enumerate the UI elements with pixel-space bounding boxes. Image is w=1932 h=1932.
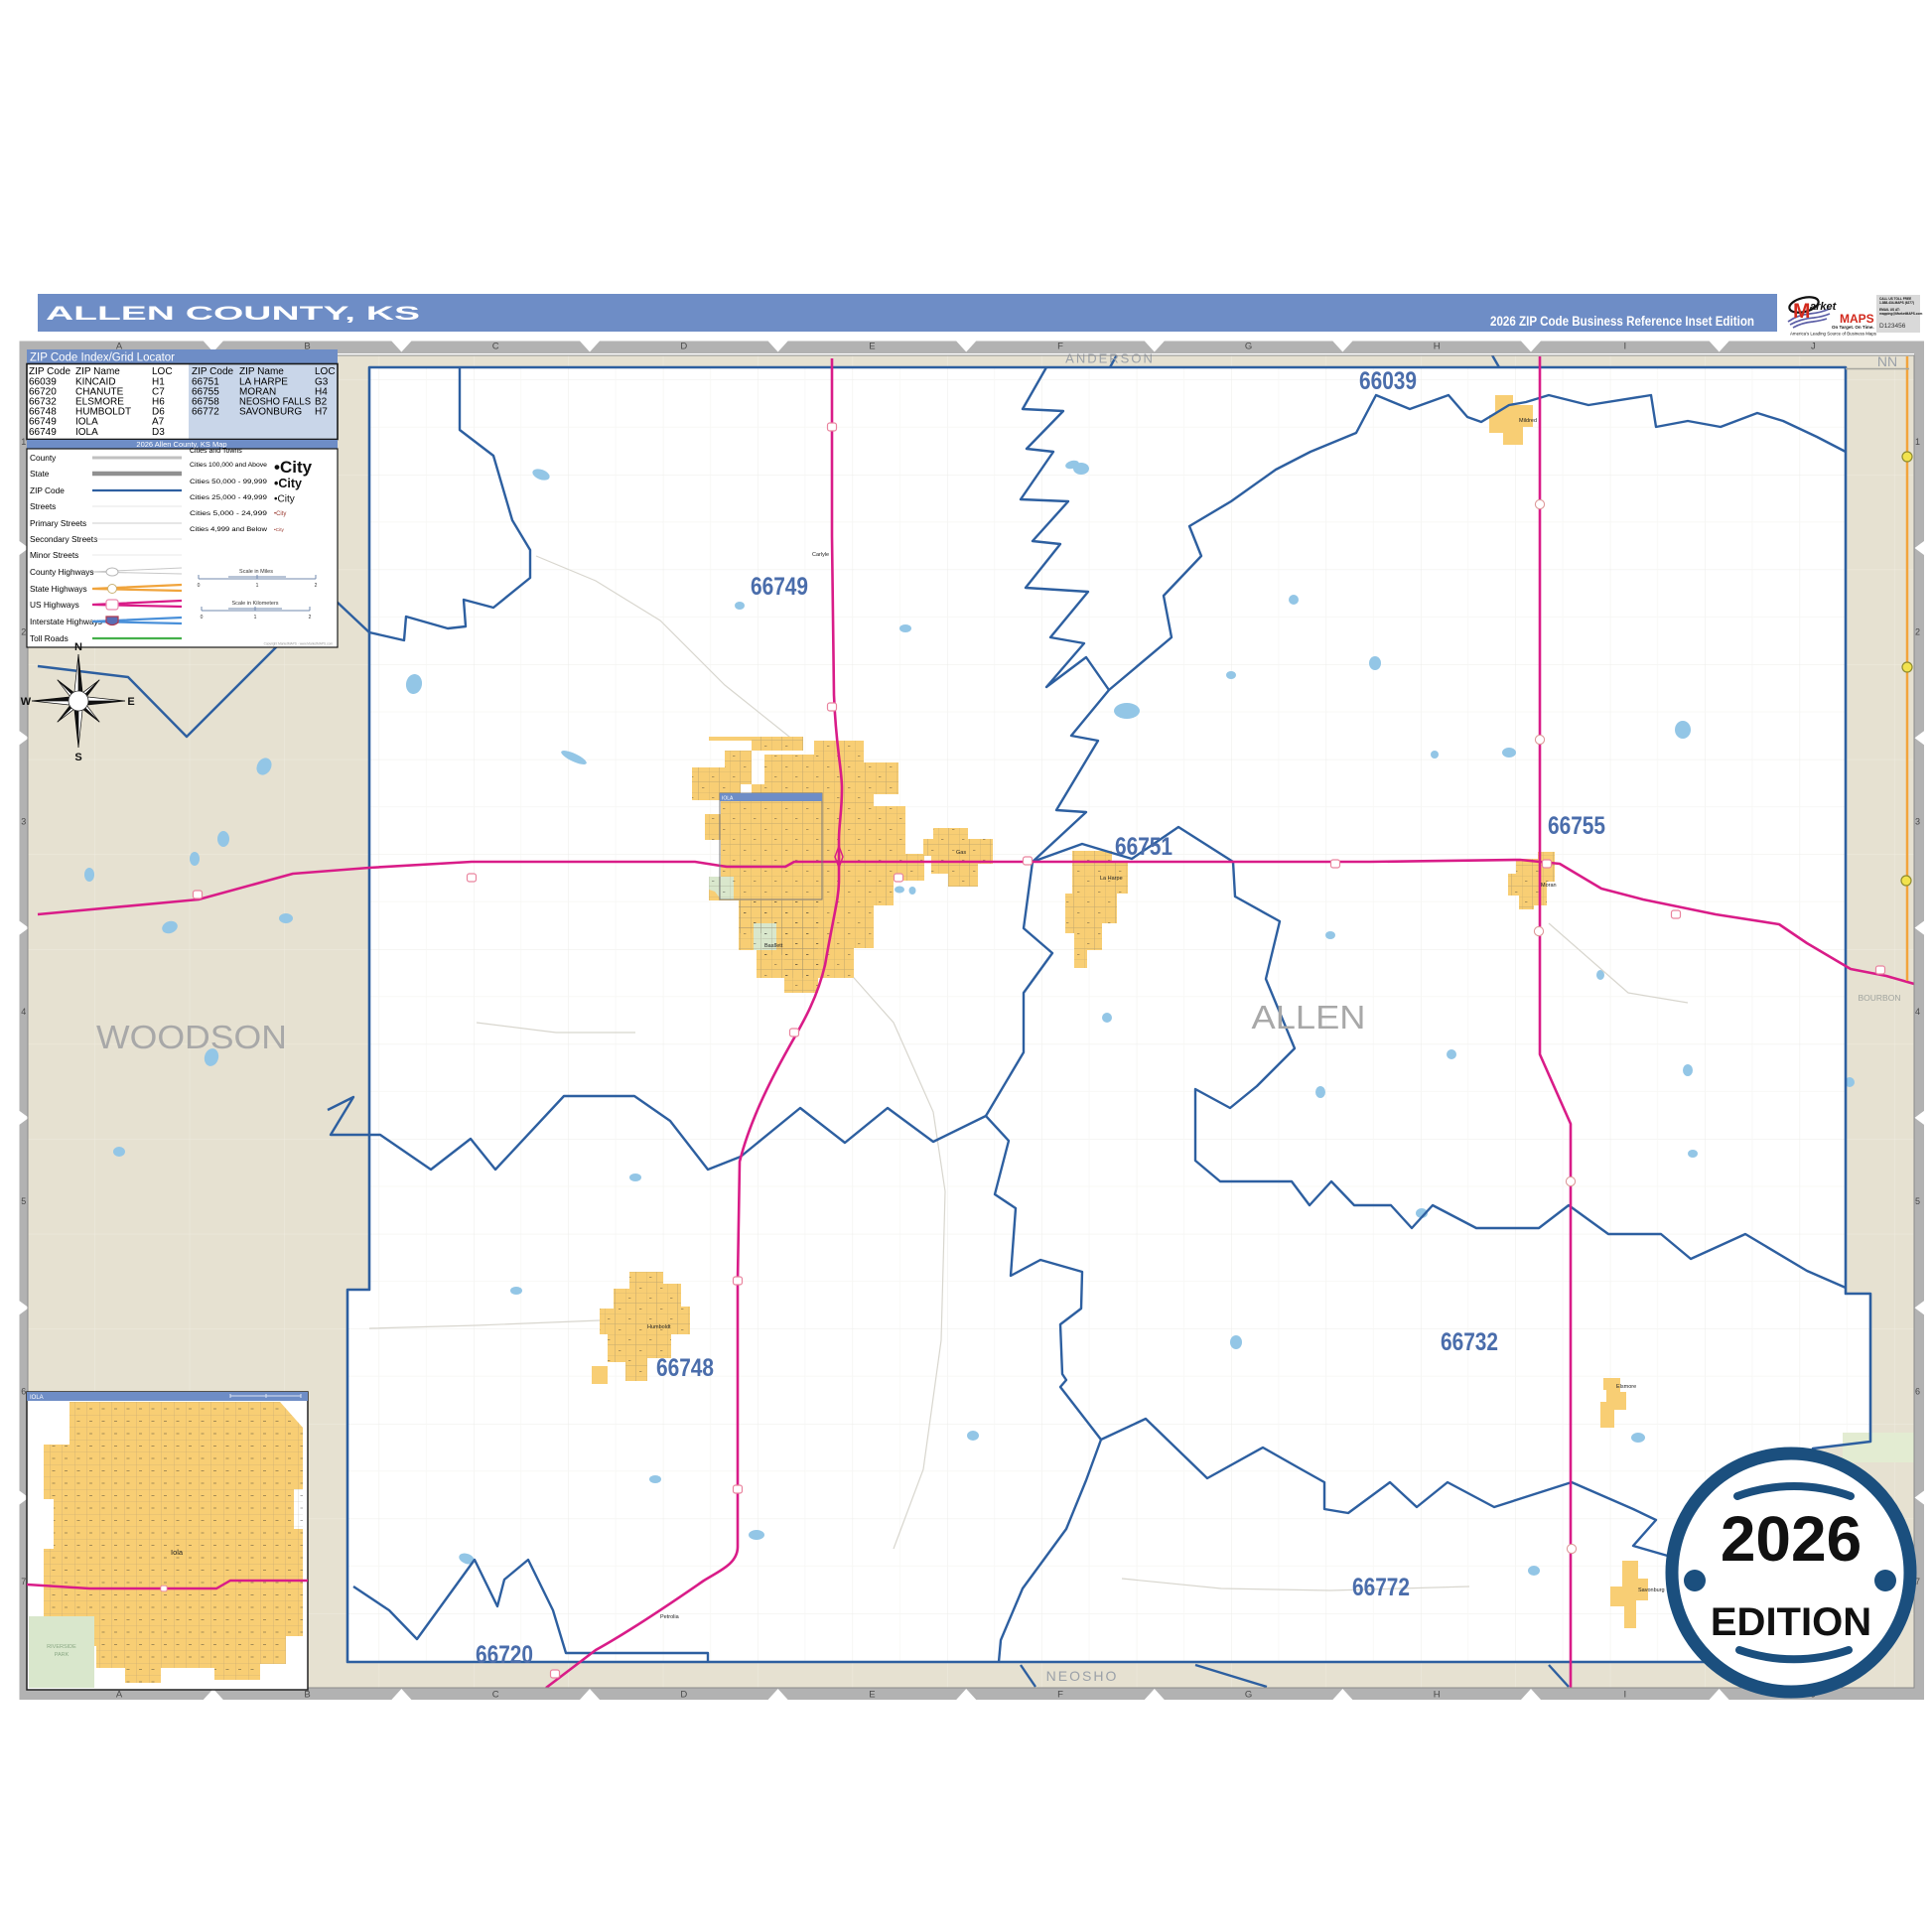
svg-text:7: 7 — [21, 1577, 26, 1587]
svg-text:RIVERSIDE: RIVERSIDE — [47, 1644, 76, 1650]
svg-text:SAVONBURG: SAVONBURG — [239, 407, 302, 418]
svg-text:EDITION: EDITION — [1711, 1600, 1871, 1644]
svg-text:D123456: D123456 — [1879, 323, 1906, 330]
svg-text:C: C — [492, 342, 499, 352]
svg-text:1: 1 — [21, 437, 26, 447]
svg-text:Cities 5,000 - 24,999: Cities 5,000 - 24,999 — [190, 510, 267, 517]
svg-text:County Highways: County Highways — [30, 567, 94, 577]
svg-text:J: J — [1811, 342, 1816, 352]
svg-text:NEOSHO: NEOSHO — [1046, 1668, 1119, 1684]
svg-text:mapping@MarketMAPS.com: mapping@MarketMAPS.com — [1879, 312, 1922, 316]
svg-text:Scale in Kilometers: Scale in Kilometers — [231, 601, 278, 607]
svg-text:ALLEN: ALLEN — [1252, 999, 1366, 1035]
svg-text:BOURBON: BOURBON — [1859, 993, 1901, 1003]
svg-text:G: G — [1245, 342, 1252, 352]
svg-text:66772: 66772 — [1352, 1574, 1410, 1601]
svg-text:B: B — [304, 1690, 310, 1701]
svg-text:NN: NN — [1877, 353, 1897, 369]
svg-text:66748: 66748 — [656, 1354, 714, 1382]
svg-text:G: G — [1245, 1690, 1252, 1701]
svg-text:Copyright MarketMAPS - www.Mar: Copyright MarketMAPS - www.MarketMAPS.co… — [264, 642, 334, 646]
svg-text:ZIP Code Index/Grid Locator: ZIP Code Index/Grid Locator — [30, 352, 175, 364]
svg-text:H: H — [1434, 1690, 1441, 1701]
svg-text:1: 1 — [254, 615, 257, 621]
svg-text:Carlyle: Carlyle — [812, 552, 829, 558]
svg-text:2026: 2026 — [1721, 1503, 1862, 1575]
svg-text:Minor Streets: Minor Streets — [30, 550, 78, 560]
svg-text:Gas: Gas — [956, 850, 966, 856]
svg-text:State: State — [30, 469, 50, 479]
svg-text:2: 2 — [21, 626, 26, 636]
svg-text:M: M — [1793, 300, 1811, 323]
svg-text:A: A — [116, 1690, 123, 1701]
svg-text:4: 4 — [1915, 1007, 1920, 1017]
svg-text:E: E — [869, 342, 875, 352]
svg-text:66749: 66749 — [29, 427, 57, 438]
svg-text:County: County — [30, 453, 57, 463]
svg-text:Humboldt: Humboldt — [647, 1324, 671, 1330]
svg-text:•City: •City — [274, 477, 302, 490]
svg-text:Iola: Iola — [171, 1548, 184, 1557]
svg-text:Mildred: Mildred — [1519, 418, 1537, 424]
svg-text:•City: •City — [274, 511, 286, 517]
svg-text:W: W — [21, 696, 32, 708]
svg-text:66751: 66751 — [1115, 833, 1173, 861]
svg-text:Cities 50,000 - 99,999: Cities 50,000 - 99,999 — [190, 479, 267, 485]
svg-text:66732: 66732 — [1441, 1328, 1498, 1356]
svg-text:arket: arket — [1810, 301, 1838, 313]
svg-text:2: 2 — [309, 615, 312, 621]
svg-text:IOLA: IOLA — [75, 427, 98, 438]
svg-text:On Target. On Time.: On Target. On Time. — [1832, 325, 1874, 330]
svg-text:0: 0 — [201, 615, 204, 621]
svg-text:1-888-434-MAPS (6277): 1-888-434-MAPS (6277) — [1879, 301, 1914, 305]
svg-text:C: C — [492, 1690, 499, 1701]
svg-text:I: I — [1623, 342, 1626, 352]
svg-text:D: D — [680, 342, 687, 352]
svg-text:Cities 25,000 - 49,999: Cities 25,000 - 49,999 — [190, 494, 267, 501]
svg-text:E: E — [127, 696, 134, 708]
svg-text:H7: H7 — [315, 407, 328, 418]
svg-text:Moran: Moran — [1541, 883, 1557, 889]
svg-text:WOODSON: WOODSON — [96, 1019, 287, 1055]
svg-text:US Highways: US Highways — [30, 600, 79, 610]
svg-text:America's Leading Source of B: America's Leading Source of Business Map… — [1790, 332, 1877, 337]
svg-text:Toll Roads: Toll Roads — [30, 633, 69, 643]
svg-text:H: H — [1434, 342, 1441, 352]
svg-text:N: N — [74, 641, 82, 653]
svg-text:ALLEN COUNTY, KS: ALLEN COUNTY, KS — [46, 304, 420, 325]
svg-text:Cities 100,000 and Above: Cities 100,000 and Above — [190, 462, 267, 469]
svg-text:66720: 66720 — [476, 1641, 533, 1669]
svg-text:IOLA: IOLA — [30, 1395, 44, 1401]
svg-text:•City: •City — [274, 494, 295, 505]
svg-text:1: 1 — [256, 583, 259, 589]
svg-text:Streets: Streets — [30, 501, 56, 511]
svg-text:0: 0 — [198, 583, 201, 589]
svg-text:La Harpe: La Harpe — [1100, 876, 1123, 882]
svg-text:Cities and Towns: Cities and Towns — [190, 448, 242, 455]
svg-text:Primary Streets: Primary Streets — [30, 518, 86, 528]
svg-text:Scale in Miles: Scale in Miles — [239, 569, 273, 575]
svg-text:I: I — [1623, 1690, 1626, 1701]
svg-text:Bassett: Bassett — [764, 943, 783, 949]
svg-text:66772: 66772 — [192, 407, 219, 418]
svg-text:S: S — [74, 752, 81, 763]
svg-text:3: 3 — [1915, 817, 1920, 827]
svg-text:ZIP Code: ZIP Code — [30, 485, 65, 495]
svg-text:66749: 66749 — [751, 573, 808, 601]
svg-text:2: 2 — [315, 583, 318, 589]
svg-text:•City: •City — [274, 527, 285, 533]
svg-text:3: 3 — [21, 817, 26, 827]
svg-text:Petrolia: Petrolia — [660, 1614, 680, 1620]
svg-text:E: E — [869, 1690, 875, 1701]
svg-text:Secondary Streets: Secondary Streets — [30, 534, 97, 544]
svg-text:D3: D3 — [152, 427, 165, 438]
svg-text:2: 2 — [1915, 626, 1920, 636]
svg-text:2026 ZIP Code Business Referen: 2026 ZIP Code Business Reference Inset E… — [1490, 314, 1754, 329]
svg-text:State Highways: State Highways — [30, 584, 87, 594]
svg-text:1: 1 — [1915, 437, 1920, 447]
svg-text:MAPS: MAPS — [1840, 312, 1874, 326]
svg-text:Savonburg: Savonburg — [1638, 1587, 1665, 1593]
svg-text:IOLA: IOLA — [722, 796, 734, 802]
svg-text:F: F — [1057, 1690, 1063, 1701]
svg-text:PARK: PARK — [55, 1652, 69, 1658]
svg-text:5: 5 — [21, 1196, 26, 1206]
svg-text:5: 5 — [1915, 1196, 1920, 1206]
svg-text:Interstate Highways: Interstate Highways — [30, 617, 102, 626]
svg-text:66039: 66039 — [1359, 367, 1417, 395]
svg-text:Cities 4,999 and Below: Cities 4,999 and Below — [190, 526, 267, 533]
svg-text:D: D — [680, 1690, 687, 1701]
svg-text:Elsmore: Elsmore — [1616, 1384, 1636, 1390]
svg-text:F: F — [1057, 342, 1063, 352]
svg-text:66755: 66755 — [1548, 812, 1605, 840]
svg-text:6: 6 — [1915, 1387, 1920, 1397]
svg-text:4: 4 — [21, 1007, 26, 1017]
svg-text:6: 6 — [21, 1387, 26, 1397]
svg-text:•City: •City — [274, 458, 313, 477]
